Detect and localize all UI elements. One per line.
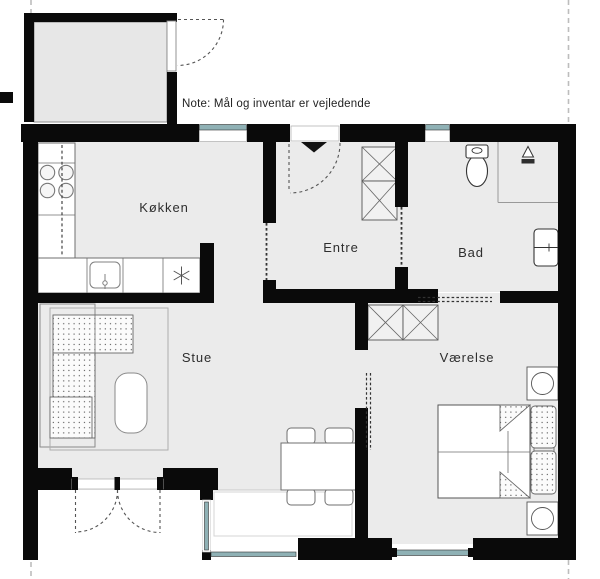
- interior-wall: [263, 289, 438, 303]
- hall-wardrobe-icon: [362, 147, 397, 220]
- toilet-icon: [466, 145, 488, 187]
- floor-plan-drawing: Note: Mål og inventar er vejledende Køkk…: [0, 0, 600, 579]
- chair-icon: [287, 489, 315, 505]
- opening-floor: [214, 293, 263, 303]
- exterior-wall: [21, 124, 188, 142]
- window-jamb: [418, 124, 425, 142]
- bedroom-wardrobe-icon: [368, 305, 438, 340]
- opening-floor: [263, 223, 276, 280]
- room-label-stue: Stue: [182, 350, 212, 365]
- pillow-icon: [531, 406, 556, 448]
- dining-table-icon: [281, 443, 358, 490]
- depot-floor: [34, 22, 167, 122]
- bath-window: [426, 125, 450, 142]
- exterior-wall: [473, 538, 576, 560]
- chair-icon: [287, 428, 315, 444]
- depot-door: [167, 20, 224, 72]
- door-leaf: [167, 21, 176, 71]
- note-text: Note: Mål og inventar er vejledende: [182, 98, 371, 110]
- window-jamb: [188, 124, 199, 142]
- sink-icon: [90, 262, 120, 289]
- door-swing-icon: [178, 20, 224, 66]
- exterior-wall: [258, 124, 290, 142]
- bedroom-window: [392, 544, 473, 560]
- interior-wall: [200, 243, 214, 303]
- exterior-wall: [340, 124, 418, 142]
- depot-wall: [24, 13, 177, 22]
- washbasin-icon: [534, 229, 558, 266]
- window-jamb: [247, 124, 258, 142]
- terrace-french-doors: [72, 477, 163, 533]
- chair-icon: [325, 489, 353, 505]
- interior-wall: [263, 142, 276, 223]
- interior-wall: [500, 291, 558, 303]
- shower-drain-grate: [522, 159, 535, 164]
- room-label-entre: Entre: [323, 240, 359, 255]
- exterior-wall-left: [23, 124, 38, 560]
- nightstand-icon: [527, 502, 558, 535]
- nightstand-icon: [527, 367, 558, 400]
- partition-wall: [355, 297, 368, 350]
- interior-wall: [395, 267, 408, 293]
- door-swing-icon: [118, 490, 161, 533]
- depot-wall: [24, 13, 34, 122]
- interior-wall: [395, 142, 408, 207]
- pillow-icon: [531, 451, 556, 494]
- glazing-post: [200, 490, 213, 500]
- interior-wall: [38, 293, 214, 303]
- bed-icon: [438, 405, 530, 498]
- floor-plan: Note: Mål og inventar er vejledende Køkk…: [0, 0, 600, 579]
- room-label-koekken: Køkken: [139, 200, 188, 215]
- window-jamb: [450, 124, 457, 142]
- neighbor-wall-stub: [0, 92, 13, 103]
- exterior-wall: [298, 538, 392, 560]
- interior-wall: [263, 280, 276, 293]
- exterior-wall: [23, 468, 72, 490]
- room-label-bad: Bad: [458, 245, 484, 260]
- kitchen-window: [200, 125, 247, 142]
- room-label-vaerelse: Værelse: [440, 350, 495, 365]
- chair-icon: [325, 428, 353, 444]
- partition-wall: [355, 408, 368, 546]
- exterior-wall-right: [558, 124, 576, 560]
- exterior-wall: [163, 468, 218, 490]
- coffee-table-icon: [115, 373, 147, 433]
- depot-wall: [167, 72, 177, 124]
- door-swing-icon: [76, 490, 118, 532]
